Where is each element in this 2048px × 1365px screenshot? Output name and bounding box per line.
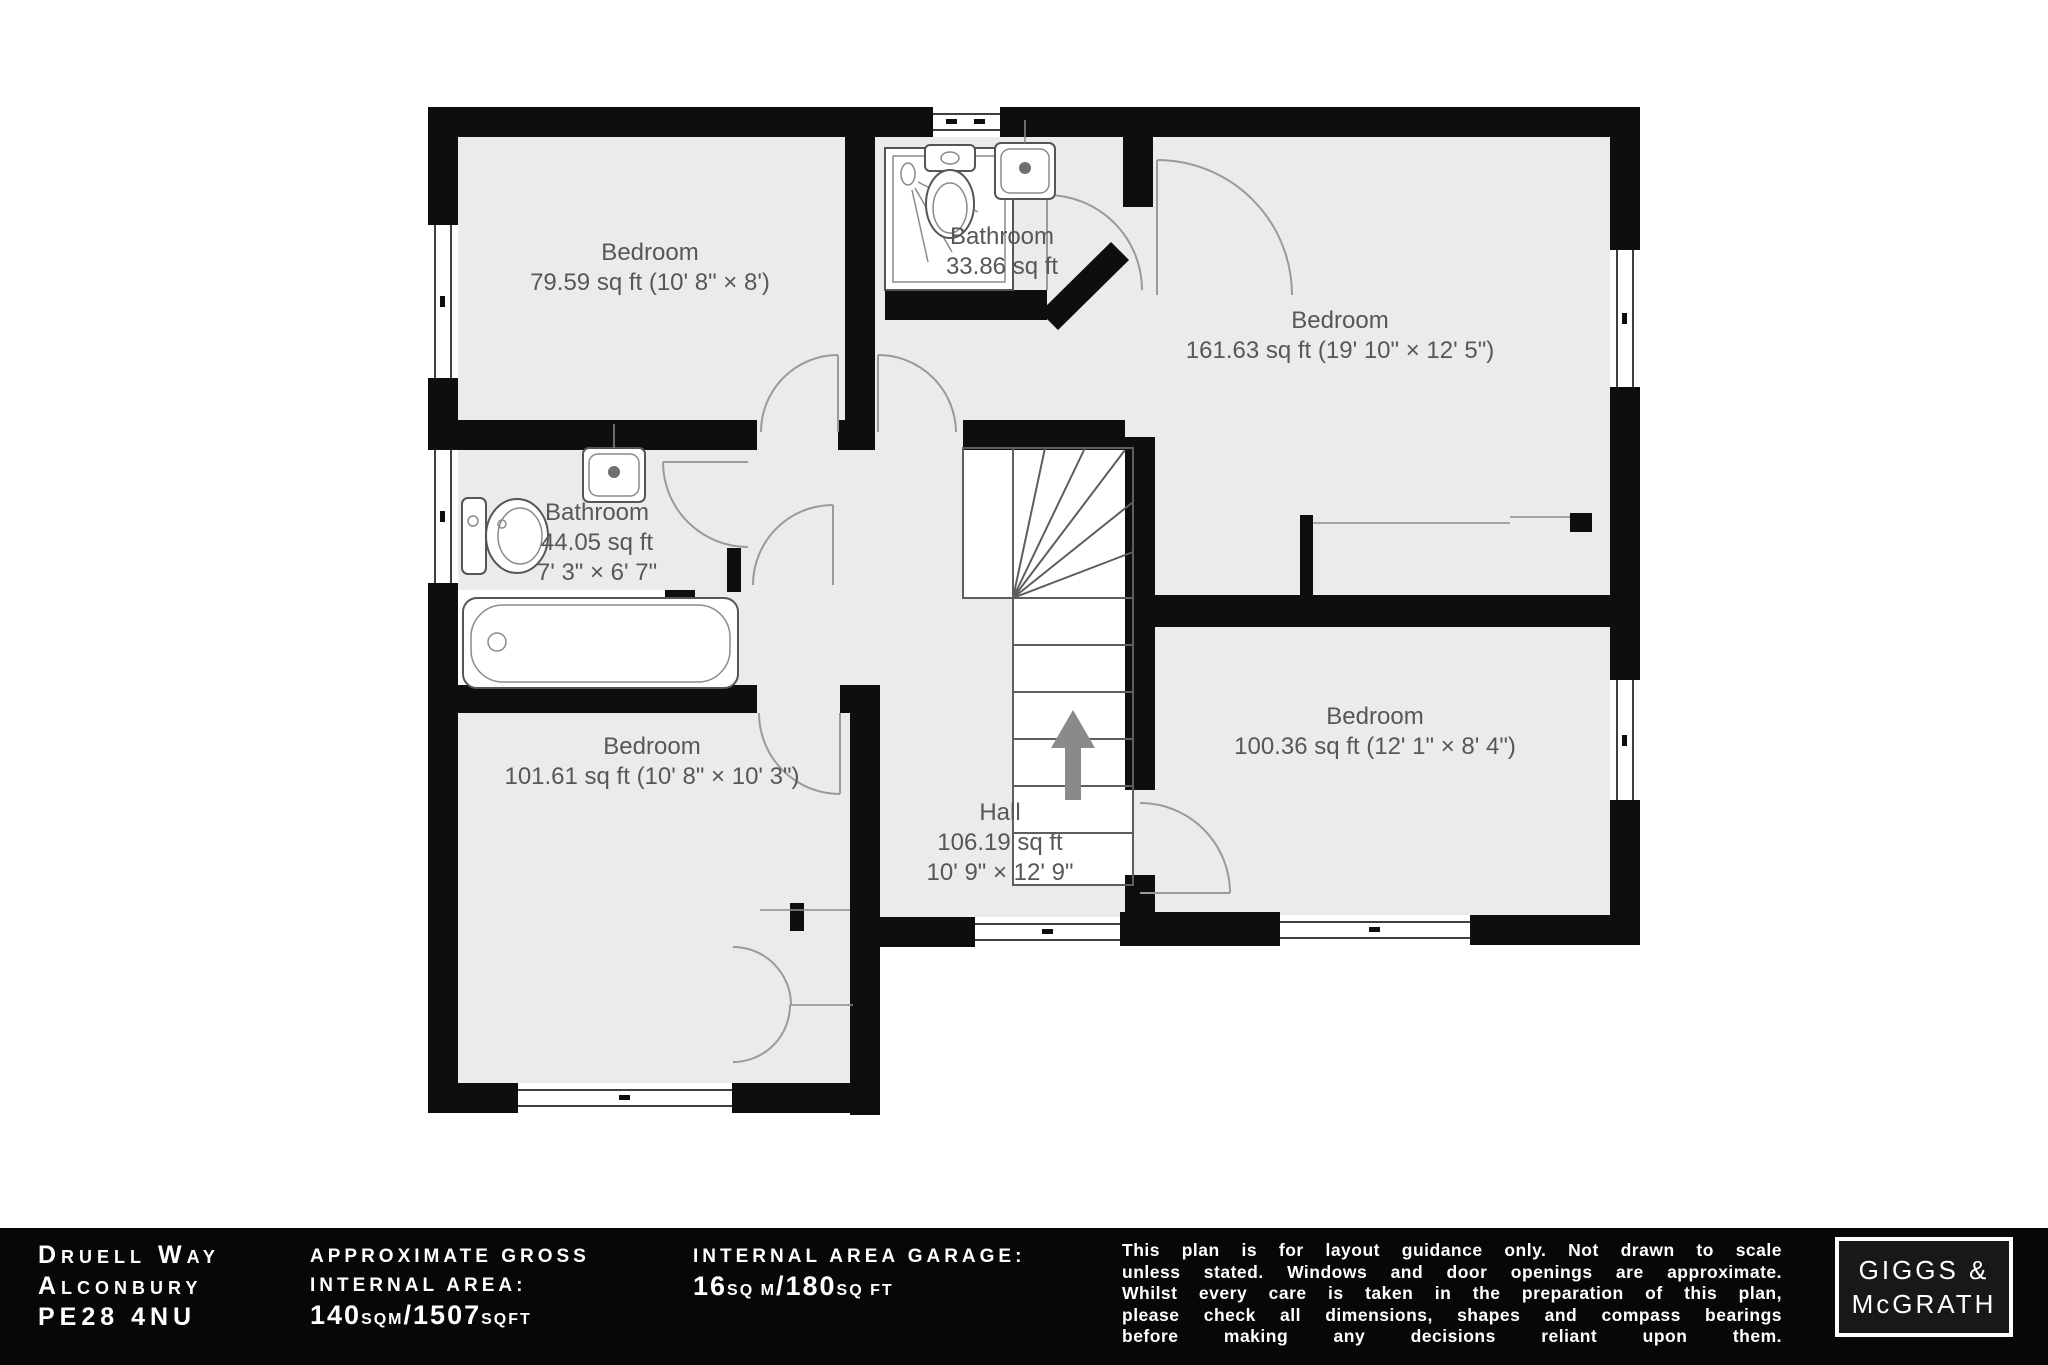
room-name: Bathroom xyxy=(946,222,1058,252)
room-label-bathroom-top: Bathroom 33.86 sq ft xyxy=(946,222,1058,282)
room-name: Bathroom xyxy=(537,498,657,528)
room-name: Bedroom xyxy=(1234,702,1516,732)
gross-area-label-line1: approximate gross xyxy=(310,1242,590,1271)
disclaimer-line: please check all dimensions, shapes and … xyxy=(1122,1305,1782,1327)
disclaimer-text: This plan is for layout guidance only. N… xyxy=(1122,1240,1782,1348)
room-name: Bedroom xyxy=(504,732,799,762)
address-postcode: PE28 4NU xyxy=(38,1302,220,1333)
room-name: Bedroom xyxy=(530,238,770,268)
room-area: 79.59 sq ft (10' 8" × 8') xyxy=(530,268,770,298)
disclaimer-line: This plan is for layout guidance only. N… xyxy=(1122,1240,1782,1262)
room-name: Bedroom xyxy=(1186,306,1494,336)
room-area: 106.19 sq ft xyxy=(927,828,1074,858)
window-left-bedroom xyxy=(428,225,458,378)
logo-line1: GIGGS & xyxy=(1859,1253,1990,1287)
garage-area-value: 16sq m/180sq ft xyxy=(693,1271,1025,1306)
room-label-hall: Hall 106.19 sq ft 10' 9" × 12' 9" xyxy=(927,798,1074,888)
room-label-bedroom-bottom-left: Bedroom 101.61 sq ft (10' 8" × 10' 3") xyxy=(504,732,799,792)
property-address: Druell Way Alconbury PE28 4NU xyxy=(38,1240,220,1333)
window-left-bathroom xyxy=(428,450,458,583)
garage-internal-area: internal area garage: 16sq m/180sq ft xyxy=(693,1242,1025,1306)
bathtub xyxy=(463,598,738,688)
room-area: 161.63 sq ft (19' 10" × 12' 5") xyxy=(1186,336,1494,366)
disclaimer-line: unless stated. Windows and door openings… xyxy=(1122,1262,1782,1284)
room-label-bedroom-right: Bedroom 100.36 sq ft (12' 1" × 8' 4") xyxy=(1234,702,1516,762)
garage-sqm-number: 16 xyxy=(693,1271,727,1301)
window-bottom-left-bedroom xyxy=(518,1083,732,1113)
garage-sqft-unit: sq ft xyxy=(837,1282,894,1299)
room-area: 100.36 sq ft (12' 1" × 8' 4") xyxy=(1234,732,1516,762)
agency-logo: GIGGS & McGRATH xyxy=(1835,1237,2013,1337)
window-hall xyxy=(975,917,1120,947)
window-top-bathroom xyxy=(933,107,1000,137)
gross-sqft-number: 1507 xyxy=(413,1300,481,1330)
gross-area-value: 140sqm/1507sqft xyxy=(310,1300,590,1335)
room-dims: 7' 3" × 6' 7" xyxy=(537,558,657,588)
disclaimer-line: Whilst every care is taken in the prepar… xyxy=(1122,1283,1782,1305)
logo-line2: McGRATH xyxy=(1852,1287,1997,1321)
gross-sqm-unit: sqm xyxy=(361,1311,403,1328)
room-area: 101.61 sq ft (10' 8" × 10' 3") xyxy=(504,762,799,792)
floorplan-drawing xyxy=(0,0,2048,1228)
room-dims: 10' 9" × 12' 9" xyxy=(927,858,1074,888)
footer-bar: Druell Way Alconbury PE28 4NU approximat… xyxy=(0,1228,2048,1365)
room-name: Hall xyxy=(927,798,1074,828)
gross-sqft-unit: sqft xyxy=(481,1311,532,1328)
gross-sqm-number: 140 xyxy=(310,1300,361,1330)
gross-internal-area: approximate gross internal area: 140sqm/… xyxy=(310,1242,590,1335)
address-town: Alconbury xyxy=(38,1271,220,1302)
garage-area-label: internal area garage: xyxy=(693,1242,1025,1271)
toilet-left xyxy=(462,498,548,574)
window-right-bedroom-south xyxy=(1280,915,1470,945)
room-label-bathroom-left: Bathroom 44.05 sq ft 7' 3" × 6' 7" xyxy=(537,498,657,588)
room-label-bedroom-top-right: Bedroom 161.63 sq ft (19' 10" × 12' 5") xyxy=(1186,306,1494,366)
room-area: 44.05 sq ft xyxy=(537,528,657,558)
floorplan-page: Bedroom 79.59 sq ft (10' 8" × 8') Bathro… xyxy=(0,0,2048,1365)
room-label-bedroom-top-left: Bedroom 79.59 sq ft (10' 8" × 8') xyxy=(530,238,770,298)
address-street: Druell Way xyxy=(38,1240,220,1271)
garage-sqft-number: 180 xyxy=(785,1271,836,1301)
disclaimer-line: before making any decisions reliant upon… xyxy=(1122,1326,1782,1348)
garage-sqm-unit: sq m xyxy=(727,1282,776,1299)
room-area: 33.86 sq ft xyxy=(946,252,1058,282)
gross-separator: / xyxy=(404,1300,414,1330)
window-right-bedroom-bottom xyxy=(1610,680,1640,800)
window-right-bedroom-top xyxy=(1610,250,1640,387)
gross-area-label-line2: internal area: xyxy=(310,1271,590,1300)
